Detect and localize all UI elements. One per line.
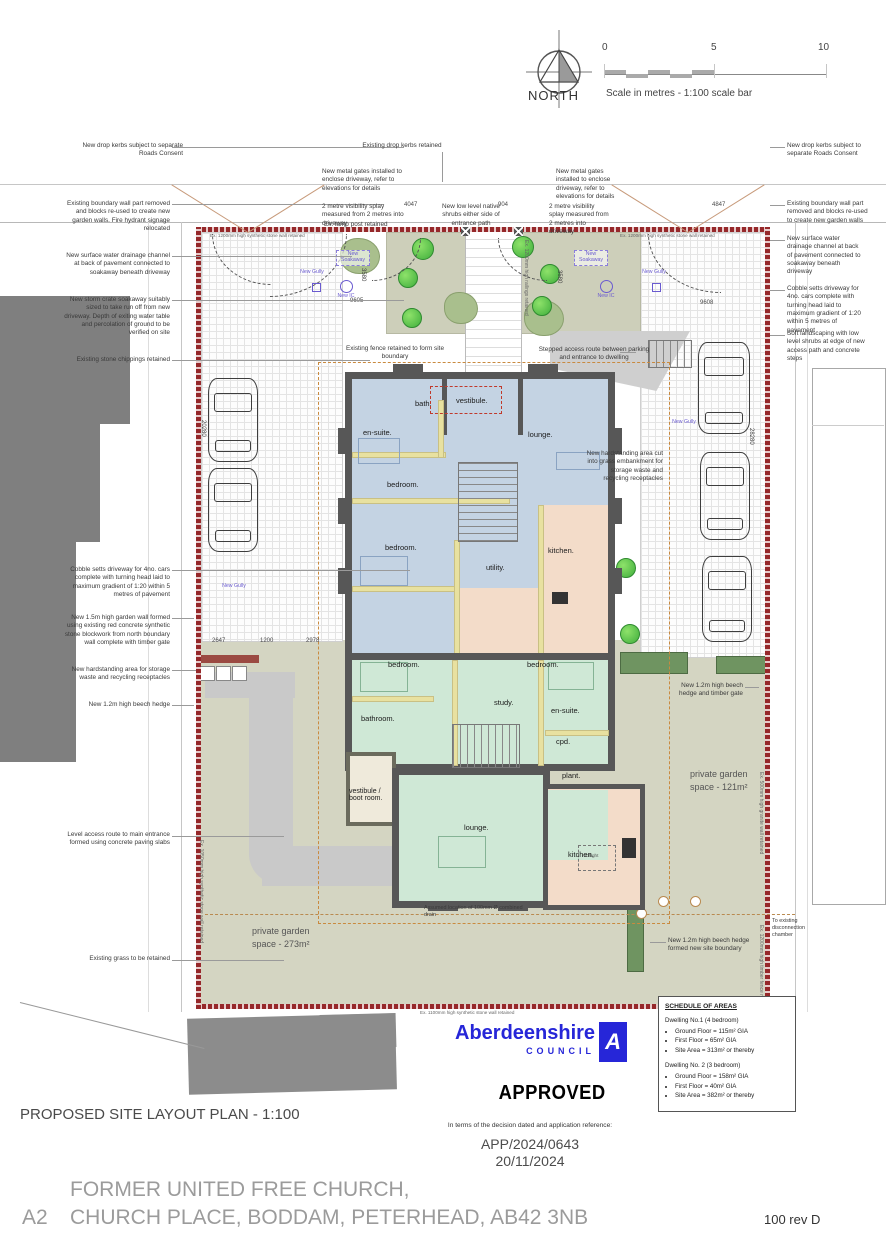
waste-bin bbox=[216, 666, 231, 681]
site-plan-sheet: NORTH 0 5 10 Scale in metres - 1:100 sca… bbox=[0, 0, 886, 1243]
dimension: 9605 bbox=[350, 298, 363, 304]
garden-wall-new bbox=[197, 655, 259, 663]
neighbour-building-west bbox=[0, 424, 100, 542]
soakaway-label: New Soakaway bbox=[336, 250, 370, 266]
annotation: New surface water drainage channel at ba… bbox=[63, 252, 170, 277]
schedule-item: Site Area = 382m² or thereby bbox=[675, 1091, 789, 1100]
project-title-line1: FORMER UNITED FREE CHURCH, bbox=[70, 1178, 410, 1202]
manhole-icon bbox=[690, 896, 701, 907]
garden-label-line: space - 121m² bbox=[690, 781, 748, 794]
schedule-of-areas: SCHEDULE OF AREAS Dwelling No.1 (4 bedro… bbox=[658, 996, 796, 1112]
annotation: New 1.2m high beech hedge bbox=[63, 701, 170, 709]
stair bbox=[458, 462, 518, 542]
annotation: Existing boundary wall part removed and … bbox=[787, 200, 869, 225]
garden-label-line: space - 273m² bbox=[252, 938, 310, 951]
annotation: Level access route to main entrance form… bbox=[63, 831, 170, 848]
sheet-size: A2 bbox=[22, 1206, 48, 1230]
cooker-icon bbox=[552, 592, 568, 604]
neighbour-building-east bbox=[812, 368, 886, 905]
boundary-label: Ex. 1200mm high railings retained bbox=[523, 240, 529, 316]
room-label: bedroom. bbox=[385, 543, 417, 552]
room-label: kitchen. bbox=[548, 546, 574, 555]
dimension: 3580 bbox=[556, 270, 562, 283]
garden-label-line: private garden bbox=[690, 768, 748, 781]
scale-caption: Scale in metres - 1:100 scale bar bbox=[606, 88, 752, 99]
boundary-label: Ex. 1200mm high synthetic stone wall ret… bbox=[210, 233, 305, 238]
tree-icon bbox=[402, 308, 422, 328]
soakaway-label: New Soakaway bbox=[574, 250, 608, 266]
waste-bin bbox=[232, 666, 247, 681]
project-title-line2: CHURCH PLACE, BODDAM, PETERHEAD, AB42 3N… bbox=[70, 1206, 588, 1230]
room-label: en-suite. bbox=[551, 706, 580, 715]
scale-bar-segment bbox=[692, 70, 714, 74]
annotation: To existing disconnection chamber bbox=[772, 918, 824, 939]
scale-tick-10: 10 bbox=[818, 42, 829, 53]
car-icon bbox=[702, 556, 752, 642]
annotation: New drop kerbs subject to separate Roads… bbox=[63, 142, 183, 159]
cooker-icon bbox=[622, 838, 636, 858]
schedule-item: Ground Floor = 115m² GIA bbox=[675, 1027, 789, 1036]
ic-label: New IC bbox=[596, 294, 616, 300]
schedule-dwelling1-list: Ground Floor = 115m² GIA First Floor = 6… bbox=[675, 1027, 789, 1055]
annotation: Stepped access route between parking and… bbox=[535, 346, 653, 363]
annotation: Existing fence retained to form site bou… bbox=[345, 345, 445, 362]
annotation: New metal gates installed to enclose dri… bbox=[322, 168, 408, 193]
boundary-label: Ex. 1100mm high synthetic stone wall ret… bbox=[420, 1010, 514, 1015]
council-logo-icon: A bbox=[599, 1022, 627, 1062]
scale-tick-5: 5 bbox=[711, 42, 717, 53]
car-icon bbox=[208, 378, 258, 462]
annotation: New hardstanding area cut into grass emb… bbox=[585, 450, 663, 483]
annotation: New 1.2m high beech hedge formed new sit… bbox=[668, 937, 758, 954]
boundary-line bbox=[20, 1002, 205, 1049]
waste-bin bbox=[200, 666, 215, 681]
room-label: en-suite. bbox=[363, 428, 392, 437]
annotation: Cobble setts driveway for 4no. cars comp… bbox=[63, 566, 170, 599]
stamp-terms: In terms of the decision dated and appli… bbox=[440, 1122, 620, 1129]
annotation: Existing drop kerbs retained bbox=[352, 142, 452, 150]
annotation: Ex. lamp post retained bbox=[324, 221, 394, 229]
annotation: New drop kerbs subject to separate Roads… bbox=[787, 142, 867, 159]
boundary-label: Ex. 1050mm high synthetic stone wall ret… bbox=[198, 840, 204, 943]
dimension: 2978 bbox=[306, 638, 319, 644]
room-label: bath. bbox=[415, 399, 432, 408]
room-label: bathroom. bbox=[361, 714, 395, 723]
schedule-dwelling1-head: Dwelling No.1 (4 bedroom) bbox=[665, 1016, 789, 1025]
gully-icon bbox=[312, 283, 321, 292]
approved-stamp: APPROVED bbox=[499, 1082, 606, 1105]
annotation: New 1.2m high beech hedge and timber gat… bbox=[665, 682, 743, 699]
scale-bar-segment bbox=[604, 70, 626, 74]
gully-label: New Gully bbox=[222, 584, 246, 590]
garden-label-west: private garden space - 273m² bbox=[252, 925, 310, 950]
gate-post bbox=[514, 227, 523, 236]
furniture bbox=[358, 438, 400, 464]
annotation: Existing boundary wall part removed and … bbox=[63, 200, 170, 233]
decision-date: 20/11/2024 bbox=[440, 1153, 620, 1169]
car-icon bbox=[700, 452, 750, 540]
boundary-label: Ex. 1200mm high synthetic stone wall ret… bbox=[620, 233, 715, 238]
room-label: bedroom. bbox=[388, 660, 420, 669]
room-label: bedroom. bbox=[387, 480, 419, 489]
manhole-icon bbox=[658, 896, 669, 907]
dimension: 3580 bbox=[360, 268, 366, 281]
stair bbox=[452, 724, 520, 768]
scale-bar-segment bbox=[648, 70, 670, 74]
room-label: kitchen. bbox=[568, 850, 594, 859]
dimension: 9608 bbox=[700, 300, 713, 306]
annotation: New hardstanding area for storage waste … bbox=[63, 666, 170, 683]
council-logo-subtext: COUNCIL bbox=[455, 1046, 595, 1056]
schedule-item: First Floor = 65m² GIA bbox=[675, 1036, 789, 1045]
north-label: NORTH bbox=[528, 88, 579, 103]
annotation: New low level native shrubs either side … bbox=[440, 203, 502, 228]
plan-title: PROPOSED SITE LAYOUT PLAN - 1:100 bbox=[20, 1106, 300, 1123]
annotation: Cobble setts driveway for 4no. cars comp… bbox=[787, 285, 865, 335]
room-label: lounge. bbox=[464, 823, 489, 832]
schedule-item: Ground Floor = 158m² GIA bbox=[675, 1072, 789, 1081]
annotation: 2 metre visibility splay measured from 2… bbox=[549, 203, 609, 236]
schedule-dwelling2-list: Ground Floor = 158m² GIA First Floor = 4… bbox=[675, 1072, 789, 1100]
schedule-item: Site Area = 313m² or thereby bbox=[675, 1046, 789, 1055]
dimension: 20280 bbox=[200, 420, 206, 437]
garden-label-east: private garden space - 121m² bbox=[690, 768, 748, 793]
annotation: New metal gates installed to enclose dri… bbox=[556, 168, 624, 201]
drawing-number: 100 rev D bbox=[764, 1212, 820, 1227]
dimension: 2647 bbox=[212, 638, 225, 644]
schedule-dwelling2-head: Dwelling No. 2 (3 bedroom) bbox=[665, 1061, 789, 1070]
dimension: 4847 bbox=[712, 202, 725, 208]
council-logo-letter: A bbox=[605, 1029, 621, 1055]
beech-hedge bbox=[716, 656, 768, 674]
furniture bbox=[360, 556, 408, 586]
inspection-chamber-icon bbox=[600, 280, 613, 293]
room-label: study. bbox=[494, 698, 513, 707]
dimension: 1200 bbox=[260, 638, 273, 644]
tree-icon bbox=[532, 296, 552, 316]
site-boundary bbox=[765, 227, 770, 1009]
dimension: 28280 bbox=[748, 428, 754, 445]
kitchen-floor bbox=[540, 505, 608, 653]
gully-label: New Gully bbox=[672, 420, 696, 426]
scale-bar-segment bbox=[670, 74, 692, 78]
annotation: Soft landscaping with low level shrubs a… bbox=[787, 330, 867, 363]
annotation: Existing stone chippings retained bbox=[63, 356, 170, 364]
scale-tick-0: 0 bbox=[602, 42, 608, 53]
shrub-icon bbox=[444, 292, 478, 324]
schedule-title: SCHEDULE OF AREAS bbox=[665, 1002, 789, 1012]
annotation: New surface water drainage channel at ba… bbox=[787, 235, 865, 277]
room-label: cpd. bbox=[556, 737, 570, 746]
room-label: lounge. bbox=[528, 430, 553, 439]
car-icon bbox=[698, 342, 750, 434]
annotation: New storm crate soakaway suitably sized … bbox=[63, 296, 170, 338]
car-icon bbox=[208, 468, 258, 552]
room-label: utility. bbox=[486, 563, 505, 572]
gate-post bbox=[461, 227, 470, 236]
boundary-label: Ex. 500mm high granite wall retained bbox=[758, 772, 764, 854]
garden-label-line: private garden bbox=[252, 925, 310, 938]
application-reference: APP/2024/0643 bbox=[440, 1136, 620, 1152]
gully-icon bbox=[652, 283, 661, 292]
council-logo-text: Aberdeenshire bbox=[455, 1022, 595, 1045]
scale-bar-segment bbox=[626, 74, 648, 78]
annotation: Existing grass to be retained bbox=[63, 955, 170, 963]
neighbour-building-south bbox=[320, 1013, 397, 1049]
utility-floor bbox=[455, 588, 541, 653]
annotation: Assumed location of 100mm Ø combined dra… bbox=[424, 905, 534, 919]
room-label: bedroom. bbox=[527, 660, 559, 669]
room-label: plant. bbox=[562, 771, 580, 780]
schedule-item: First Floor = 40m² GIA bbox=[675, 1082, 789, 1091]
council-stamp: Aberdeenshire COUNCIL A bbox=[455, 1022, 635, 1062]
room-label: vestibule / boot room. bbox=[349, 788, 395, 802]
inspection-chamber-icon bbox=[340, 280, 353, 293]
annotation: New 1.5m high garden wall formed using e… bbox=[63, 614, 170, 647]
furniture bbox=[438, 836, 486, 868]
room-label: vestibule. bbox=[456, 396, 488, 405]
gully-label: New Gully bbox=[642, 270, 666, 276]
gully-label: New Gully bbox=[300, 270, 324, 276]
